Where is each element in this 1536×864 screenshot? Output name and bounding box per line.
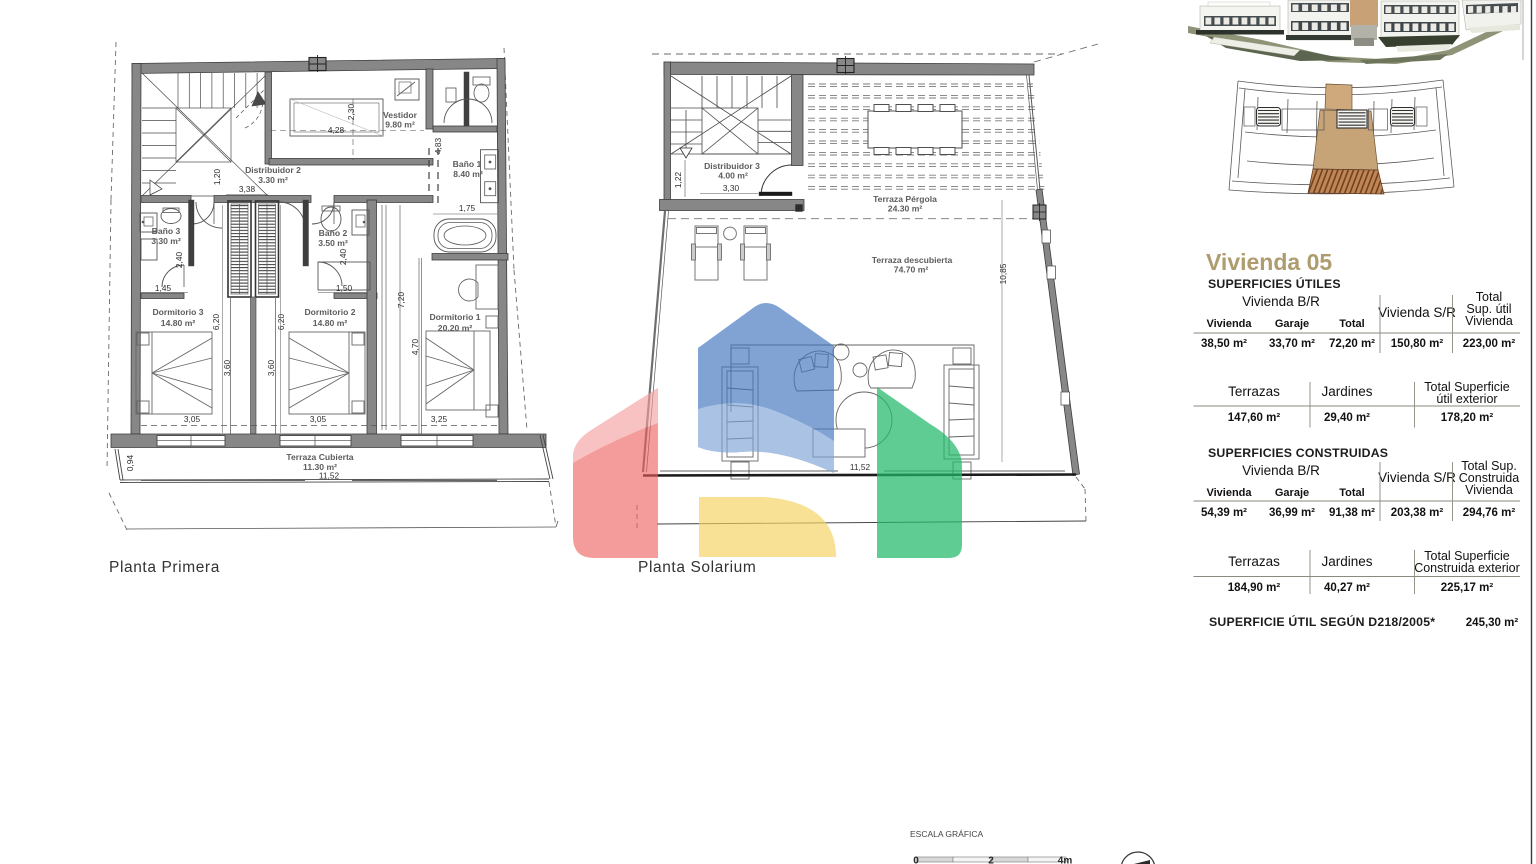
svg-text:1,20: 1,20 — [212, 169, 222, 186]
svg-text:ESCALA GRÁFICA: ESCALA GRÁFICA — [910, 829, 984, 839]
svg-text:Vivienda S/R: Vivienda S/R — [1378, 305, 1456, 320]
svg-text:2,40: 2,40 — [338, 249, 348, 266]
svg-text:178,20 m²: 178,20 m² — [1441, 412, 1494, 424]
svg-text:Jardines: Jardines — [1321, 384, 1372, 399]
svg-text:4.00 m²: 4.00 m² — [718, 171, 748, 181]
svg-text:SUPERFICIES CONSTRUIDAS: SUPERFICIES CONSTRUIDAS — [1208, 446, 1388, 460]
svg-text:Vivienda S/R: Vivienda S/R — [1378, 470, 1456, 485]
svg-text:6,20: 6,20 — [276, 314, 286, 331]
svg-text:147,60 m²: 147,60 m² — [1228, 412, 1281, 424]
svg-text:0,94: 0,94 — [125, 455, 135, 472]
svg-text:10,85: 10,85 — [998, 263, 1008, 284]
svg-text:1,45: 1,45 — [155, 283, 172, 293]
svg-text:Terrazas: Terrazas — [1228, 554, 1280, 569]
svg-text:72,20 m²: 72,20 m² — [1329, 338, 1375, 350]
svg-text:SUPERFICIES ÚTILES: SUPERFICIES ÚTILES — [1208, 276, 1341, 291]
svg-text:11,52: 11,52 — [319, 471, 340, 481]
svg-text:38,50 m²: 38,50 m² — [1201, 338, 1247, 350]
svg-text:Vivienda B/R: Vivienda B/R — [1242, 294, 1320, 309]
svg-text:SUPERFICIE ÚTIL SEGÚN D218/200: SUPERFICIE ÚTIL SEGÚN D218/2005* — [1209, 614, 1435, 629]
svg-text:Vivienda B/R: Vivienda B/R — [1242, 463, 1320, 478]
svg-text:Dormitorio 3: Dormitorio 3 — [152, 307, 203, 317]
svg-text:3,30: 3,30 — [723, 183, 740, 193]
svg-text:8.40 m²: 8.40 m² — [453, 169, 483, 179]
svg-text:36,99 m²: 36,99 m² — [1269, 507, 1315, 519]
svg-text:54,39 m²: 54,39 m² — [1201, 507, 1247, 519]
svg-text:Vivienda: Vivienda — [1206, 487, 1252, 499]
svg-text:2,40: 2,40 — [174, 252, 184, 269]
svg-text:Construida exterior: Construida exterior — [1414, 561, 1520, 575]
svg-text:3,05: 3,05 — [310, 414, 327, 424]
svg-text:225,17 m²: 225,17 m² — [1441, 582, 1494, 594]
svg-text:9.80 m²: 9.80 m² — [385, 120, 415, 130]
svg-text:Dormitorio 2: Dormitorio 2 — [304, 307, 355, 317]
svg-text:74.70 m²: 74.70 m² — [894, 265, 929, 275]
svg-text:4,28: 4,28 — [328, 125, 345, 135]
svg-text:Vivienda: Vivienda — [1465, 483, 1513, 497]
svg-text:150,80 m²: 150,80 m² — [1391, 338, 1444, 350]
svg-text:Distribuidor 3: Distribuidor 3 — [704, 161, 760, 171]
svg-text:7,20: 7,20 — [396, 292, 406, 309]
svg-text:3,60: 3,60 — [266, 360, 276, 377]
svg-text:203,38 m²: 203,38 m² — [1391, 507, 1444, 519]
svg-text:14.80 m²: 14.80 m² — [161, 318, 196, 328]
svg-text:3,38: 3,38 — [239, 184, 256, 194]
svg-text:3.30 m²: 3.30 m² — [151, 236, 181, 246]
svg-text:14.80 m²: 14.80 m² — [313, 318, 348, 328]
svg-text:Distribuidor 2: Distribuidor 2 — [245, 165, 301, 175]
svg-text:Vestidor: Vestidor — [383, 110, 418, 120]
svg-text:Garaje: Garaje — [1275, 318, 1309, 330]
svg-text:Terraza descubierta: Terraza descubierta — [872, 255, 953, 265]
svg-text:Baño 3: Baño 3 — [152, 226, 181, 236]
svg-text:0: 0 — [913, 856, 919, 864]
svg-text:Planta Solarium: Planta Solarium — [638, 559, 756, 576]
svg-text:Total: Total — [1339, 318, 1364, 330]
svg-text:2,30: 2,30 — [346, 104, 356, 121]
svg-text:3,60: 3,60 — [222, 360, 232, 377]
svg-text:4m: 4m — [1058, 856, 1073, 864]
svg-text:Jardines: Jardines — [1321, 554, 1372, 569]
svg-text:Planta Primera: Planta Primera — [109, 559, 220, 576]
svg-text:Vivienda 05: Vivienda 05 — [1206, 249, 1332, 275]
svg-text:223,00 m²: 223,00 m² — [1463, 338, 1516, 350]
svg-text:Baño 1: Baño 1 — [453, 159, 482, 169]
svg-text:184,90 m²: 184,90 m² — [1228, 582, 1281, 594]
svg-text:1,75: 1,75 — [459, 203, 476, 213]
svg-text:1,50: 1,50 — [336, 283, 353, 293]
svg-text:Vivienda: Vivienda — [1206, 318, 1252, 330]
svg-text:245,30 m²: 245,30 m² — [1466, 617, 1519, 629]
svg-text:1,22: 1,22 — [673, 172, 683, 189]
svg-text:3.50 m²: 3.50 m² — [318, 238, 348, 248]
svg-text:24.30 m²: 24.30 m² — [888, 204, 923, 214]
svg-text:20.20 m²: 20.20 m² — [438, 323, 473, 333]
svg-text:útil exterior: útil exterior — [1436, 392, 1497, 406]
svg-text:Terraza Cubierta: Terraza Cubierta — [286, 452, 353, 462]
svg-text:2: 2 — [988, 856, 994, 864]
svg-text:6,20: 6,20 — [211, 314, 221, 331]
svg-text:4,70: 4,70 — [410, 339, 420, 356]
svg-text:33,70 m²: 33,70 m² — [1269, 338, 1315, 350]
svg-text:Terrazas: Terrazas — [1228, 384, 1280, 399]
svg-text:91,38 m²: 91,38 m² — [1329, 507, 1375, 519]
svg-text:4,83: 4,83 — [433, 138, 443, 155]
svg-text:3.30 m²: 3.30 m² — [258, 175, 288, 185]
svg-text:40,27 m²: 40,27 m² — [1324, 582, 1370, 594]
svg-text:11,52: 11,52 — [850, 462, 871, 472]
svg-text:294,76 m²: 294,76 m² — [1463, 507, 1516, 519]
svg-text:3,05: 3,05 — [184, 414, 201, 424]
svg-text:Baño 2: Baño 2 — [319, 228, 348, 238]
svg-text:29,40 m²: 29,40 m² — [1324, 412, 1370, 424]
svg-text:Total: Total — [1339, 487, 1364, 499]
svg-text:3,25: 3,25 — [431, 414, 448, 424]
svg-text:Dormitorio 1: Dormitorio 1 — [429, 312, 480, 322]
svg-text:Vivienda: Vivienda — [1465, 314, 1513, 328]
svg-text:Garaje: Garaje — [1275, 487, 1309, 499]
svg-text:Terraza Pérgola: Terraza Pérgola — [873, 194, 937, 204]
